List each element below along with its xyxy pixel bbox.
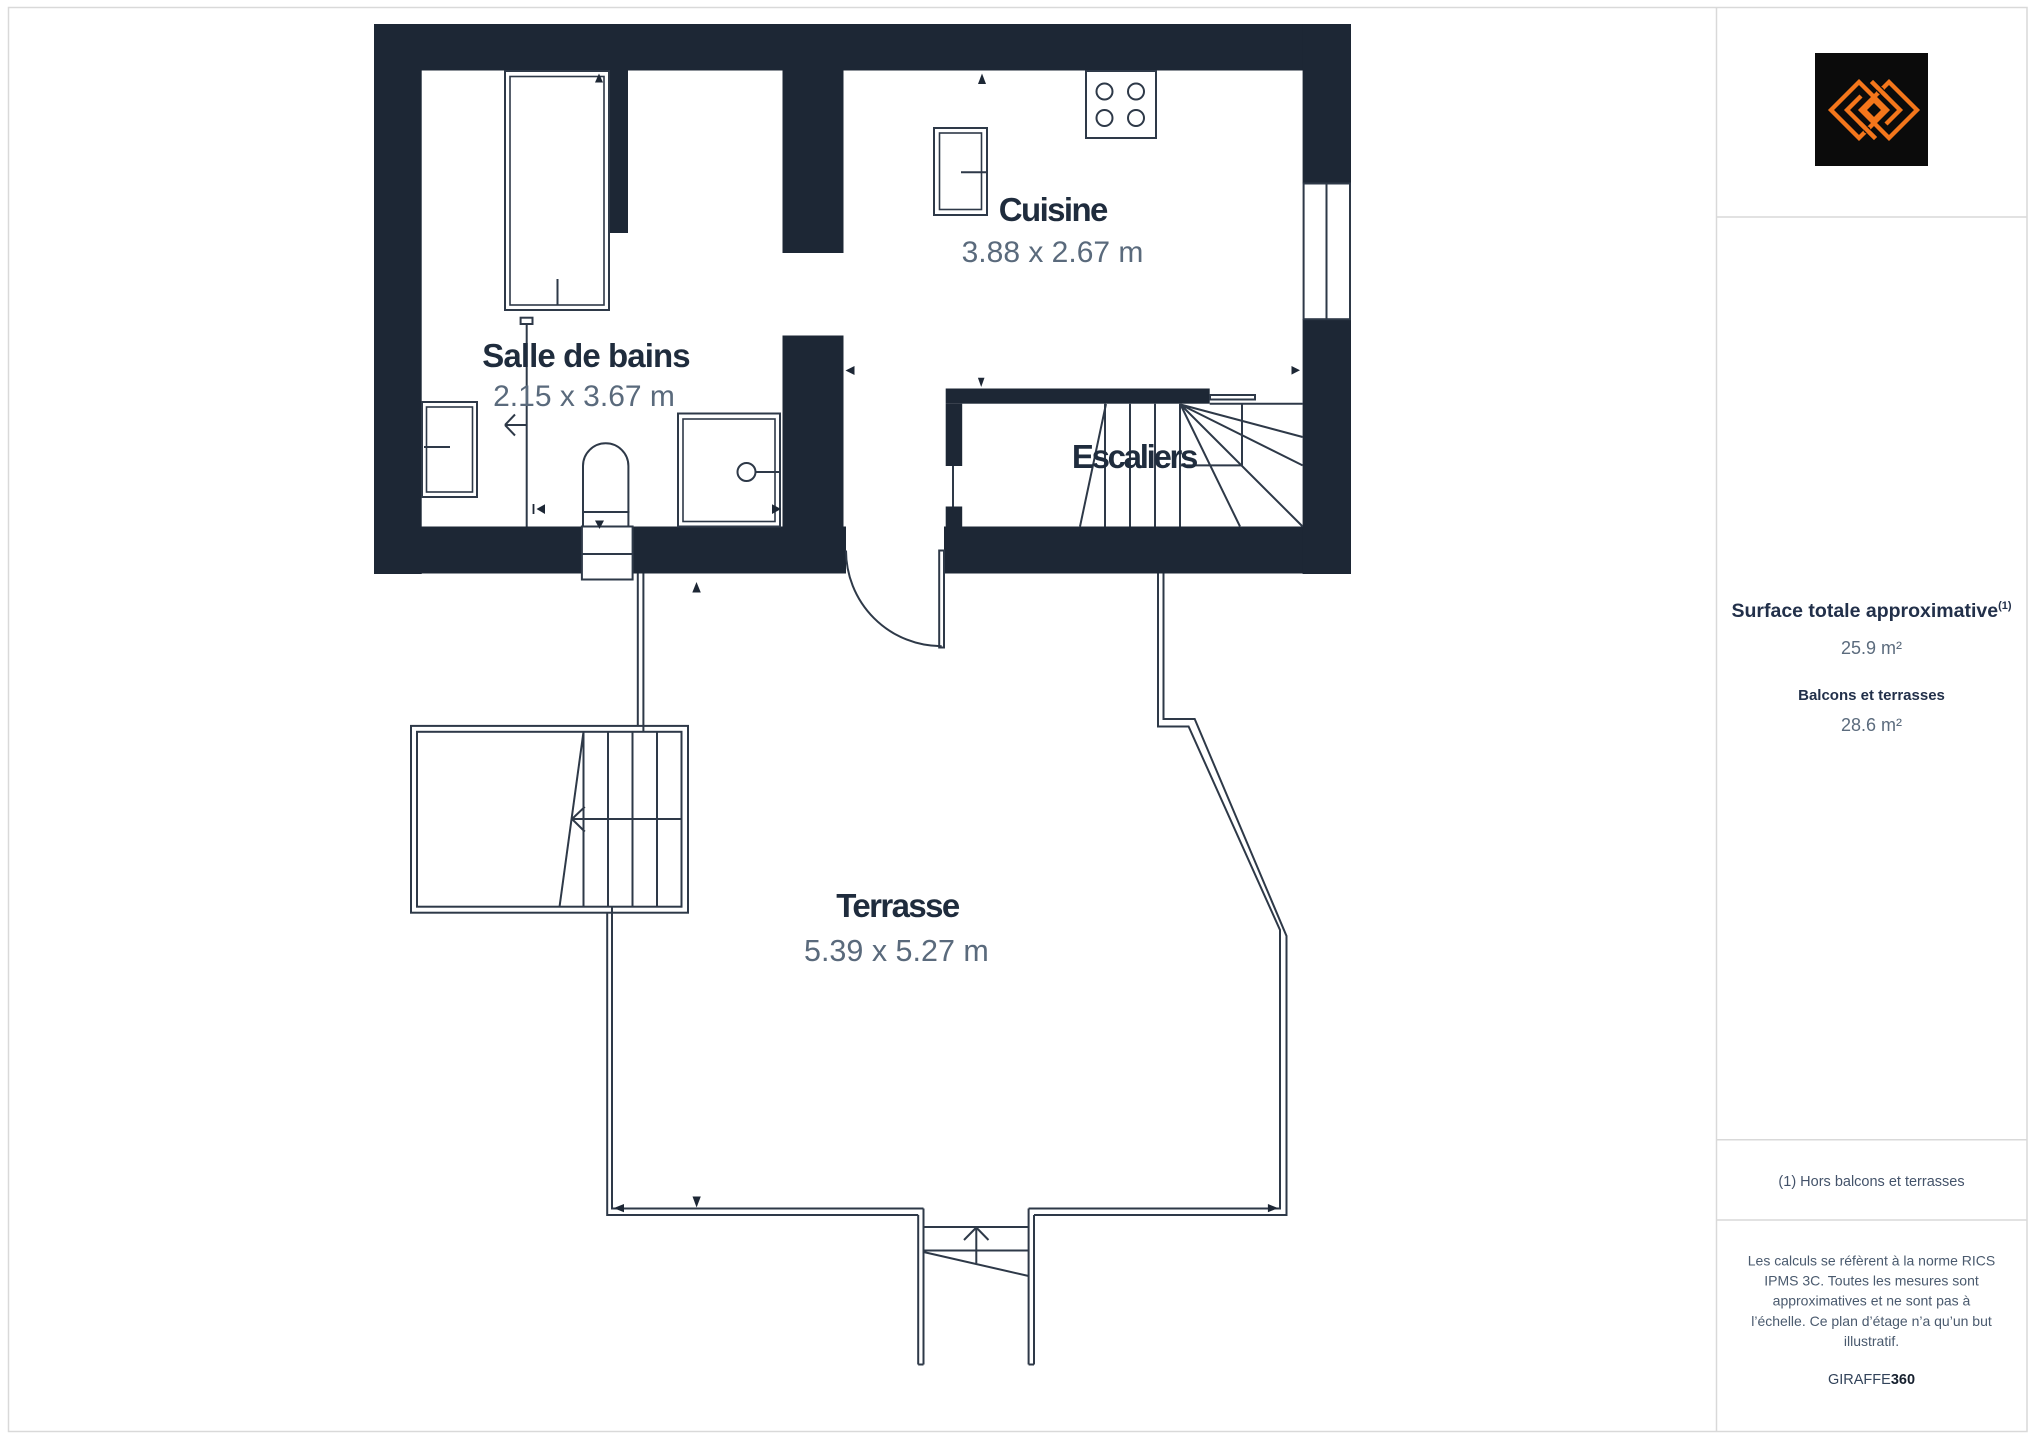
svg-text:Terrasse: Terrasse	[836, 887, 960, 924]
svg-text:IPMS 3C. Toutes les mesures so: IPMS 3C. Toutes les mesures sont	[1764, 1273, 1979, 1289]
svg-text:5.39 x 5.27 m: 5.39 x 5.27 m	[804, 934, 989, 968]
svg-text:l’échelle. Ce plan d’étage n’a: l’échelle. Ce plan d’étage n’a qu’un but	[1751, 1313, 1992, 1329]
svg-text:Salle de bains: Salle de bains	[482, 337, 690, 374]
svg-text:2.15 x 3.67 m: 2.15 x 3.67 m	[493, 380, 675, 413]
svg-text:28.6 m²: 28.6 m²	[1841, 715, 1902, 735]
svg-text:approximatives et ne sont pas: approximatives et ne sont pas à	[1773, 1293, 1971, 1309]
svg-text:(1) Hors balcons et terrasses: (1) Hors balcons et terrasses	[1778, 1174, 1964, 1190]
svg-text:GIRAFFE360: GIRAFFE360	[1828, 1372, 1915, 1388]
svg-text:Les calculs se réfèrent à la n: Les calculs se réfèrent à la norme RICS	[1748, 1253, 1995, 1269]
svg-text:Balcons et terrasses: Balcons et terrasses	[1798, 687, 1945, 704]
svg-text:Escaliers: Escaliers	[1072, 438, 1197, 475]
svg-text:25.9 m²: 25.9 m²	[1841, 638, 1902, 658]
svg-text:illustratif.: illustratif.	[1844, 1333, 1899, 1349]
svg-text:Cuisine: Cuisine	[999, 191, 1108, 228]
svg-text:3.88 x 2.67 m: 3.88 x 2.67 m	[962, 236, 1144, 269]
svg-text:Surface totale approximative(1: Surface totale approximative(1)	[1731, 600, 2011, 622]
